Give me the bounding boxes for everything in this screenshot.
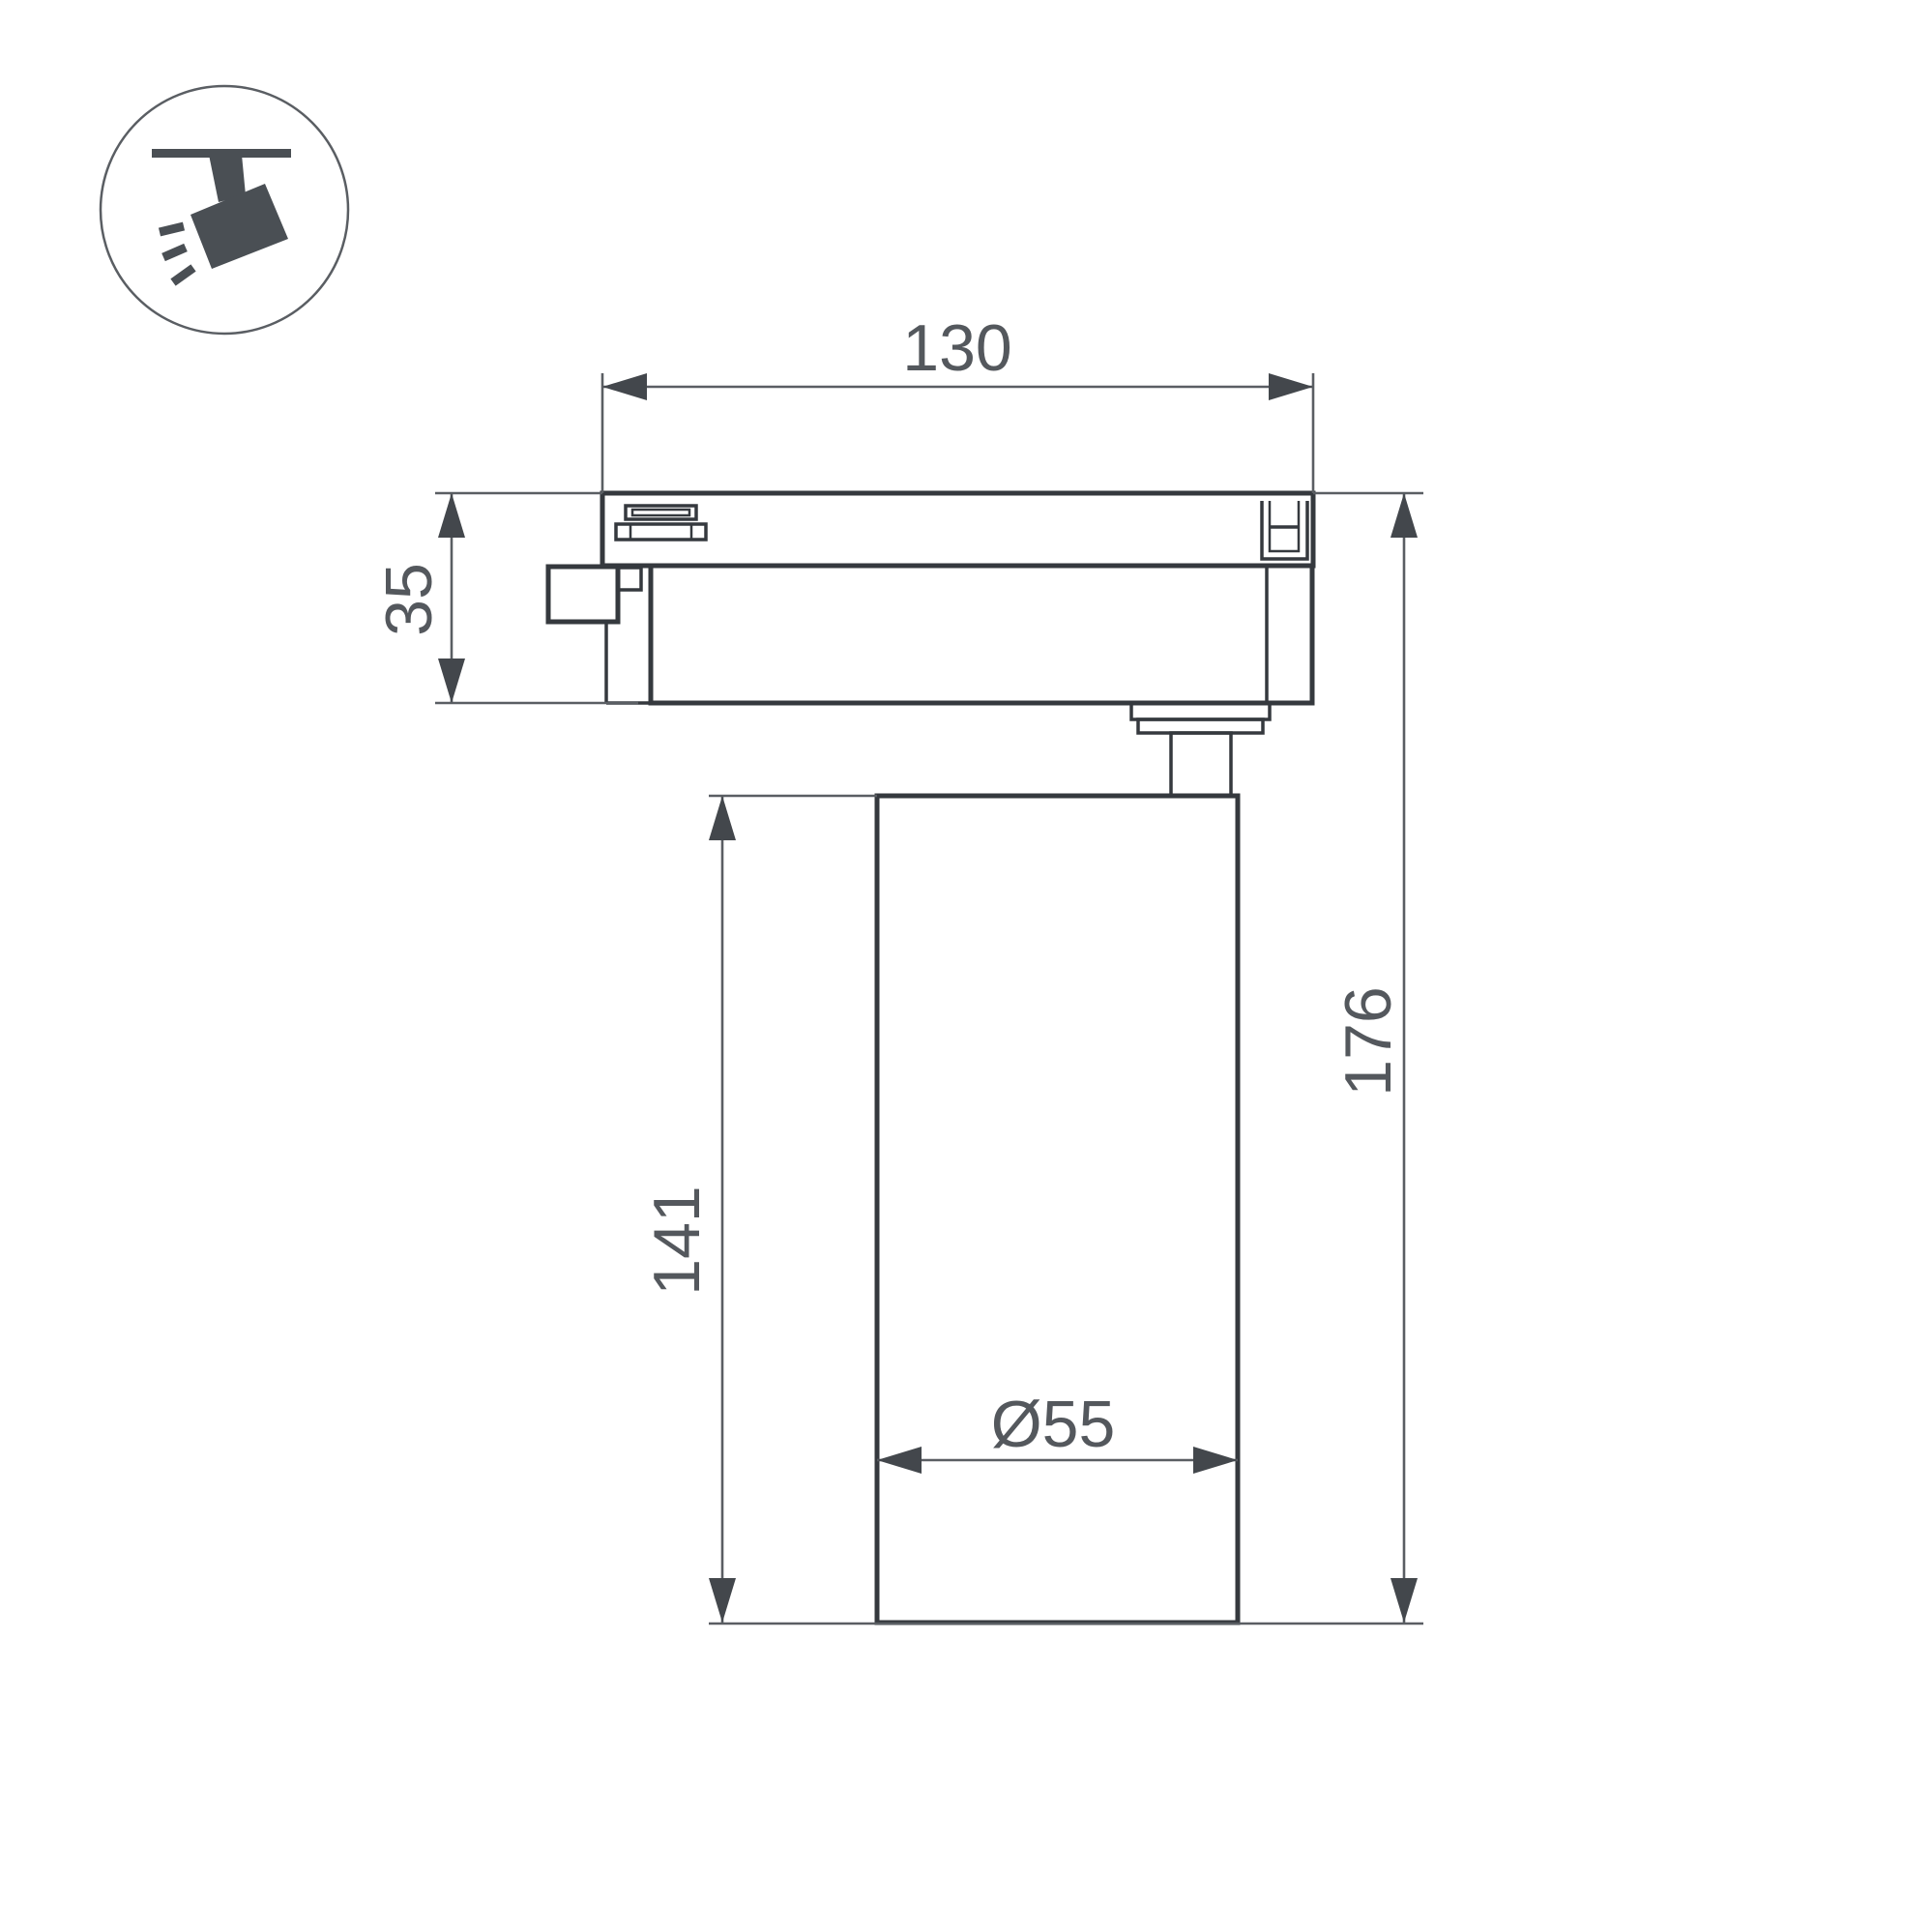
adapter-contact-upper-inner bbox=[632, 510, 689, 515]
adapter-upper-housing bbox=[602, 493, 1313, 566]
stem-neck bbox=[1171, 733, 1231, 796]
dimension-label-lamp-diameter: Ø55 bbox=[991, 1388, 1116, 1461]
dimension-adapter-height: 35 bbox=[372, 493, 638, 703]
adapter-lower-housing bbox=[651, 566, 1312, 703]
lamp-body-outline bbox=[877, 796, 1238, 1623]
arrowhead-up bbox=[1390, 493, 1418, 538]
dimension-label-lamp-height: 141 bbox=[640, 1186, 714, 1295]
stem-flange-upper bbox=[1131, 703, 1270, 719]
dimension-label-total-height: 176 bbox=[1332, 986, 1405, 1096]
arrowhead-down bbox=[1390, 1578, 1418, 1623]
track-spotlight-icon bbox=[101, 86, 348, 334]
arrowhead-left bbox=[877, 1447, 922, 1474]
arrowhead-right bbox=[1269, 373, 1313, 400]
stem-flange-lower bbox=[1138, 719, 1263, 733]
adapter-lock-step bbox=[618, 568, 641, 590]
track-adapter-body bbox=[548, 493, 1313, 703]
dimension-label-track-width: 130 bbox=[902, 311, 1011, 385]
arrowhead-up bbox=[709, 796, 736, 840]
dimension-track-width: 130 bbox=[602, 311, 1313, 493]
arrowhead-up bbox=[438, 493, 465, 538]
adapter-lock-knob bbox=[548, 567, 618, 622]
icon-light-ray bbox=[160, 226, 184, 232]
lamp-cylinder bbox=[877, 796, 1238, 1623]
technical-drawing-page: 130 35 141 176 bbox=[0, 0, 1932, 1932]
adapter-contact-upper bbox=[626, 506, 696, 519]
dimension-drawing: 130 35 141 176 bbox=[0, 0, 1932, 1932]
mounting-stem bbox=[1131, 703, 1270, 796]
dimension-label-adapter-height: 35 bbox=[372, 563, 446, 636]
dimension-lamp-diameter: Ø55 bbox=[877, 1388, 1238, 1474]
arrowhead-down bbox=[709, 1578, 736, 1623]
dimension-lamp-height: 141 bbox=[640, 796, 877, 1623]
arrowhead-down bbox=[438, 659, 465, 703]
arrowhead-left bbox=[602, 373, 647, 400]
arrowhead-right bbox=[1193, 1447, 1238, 1474]
